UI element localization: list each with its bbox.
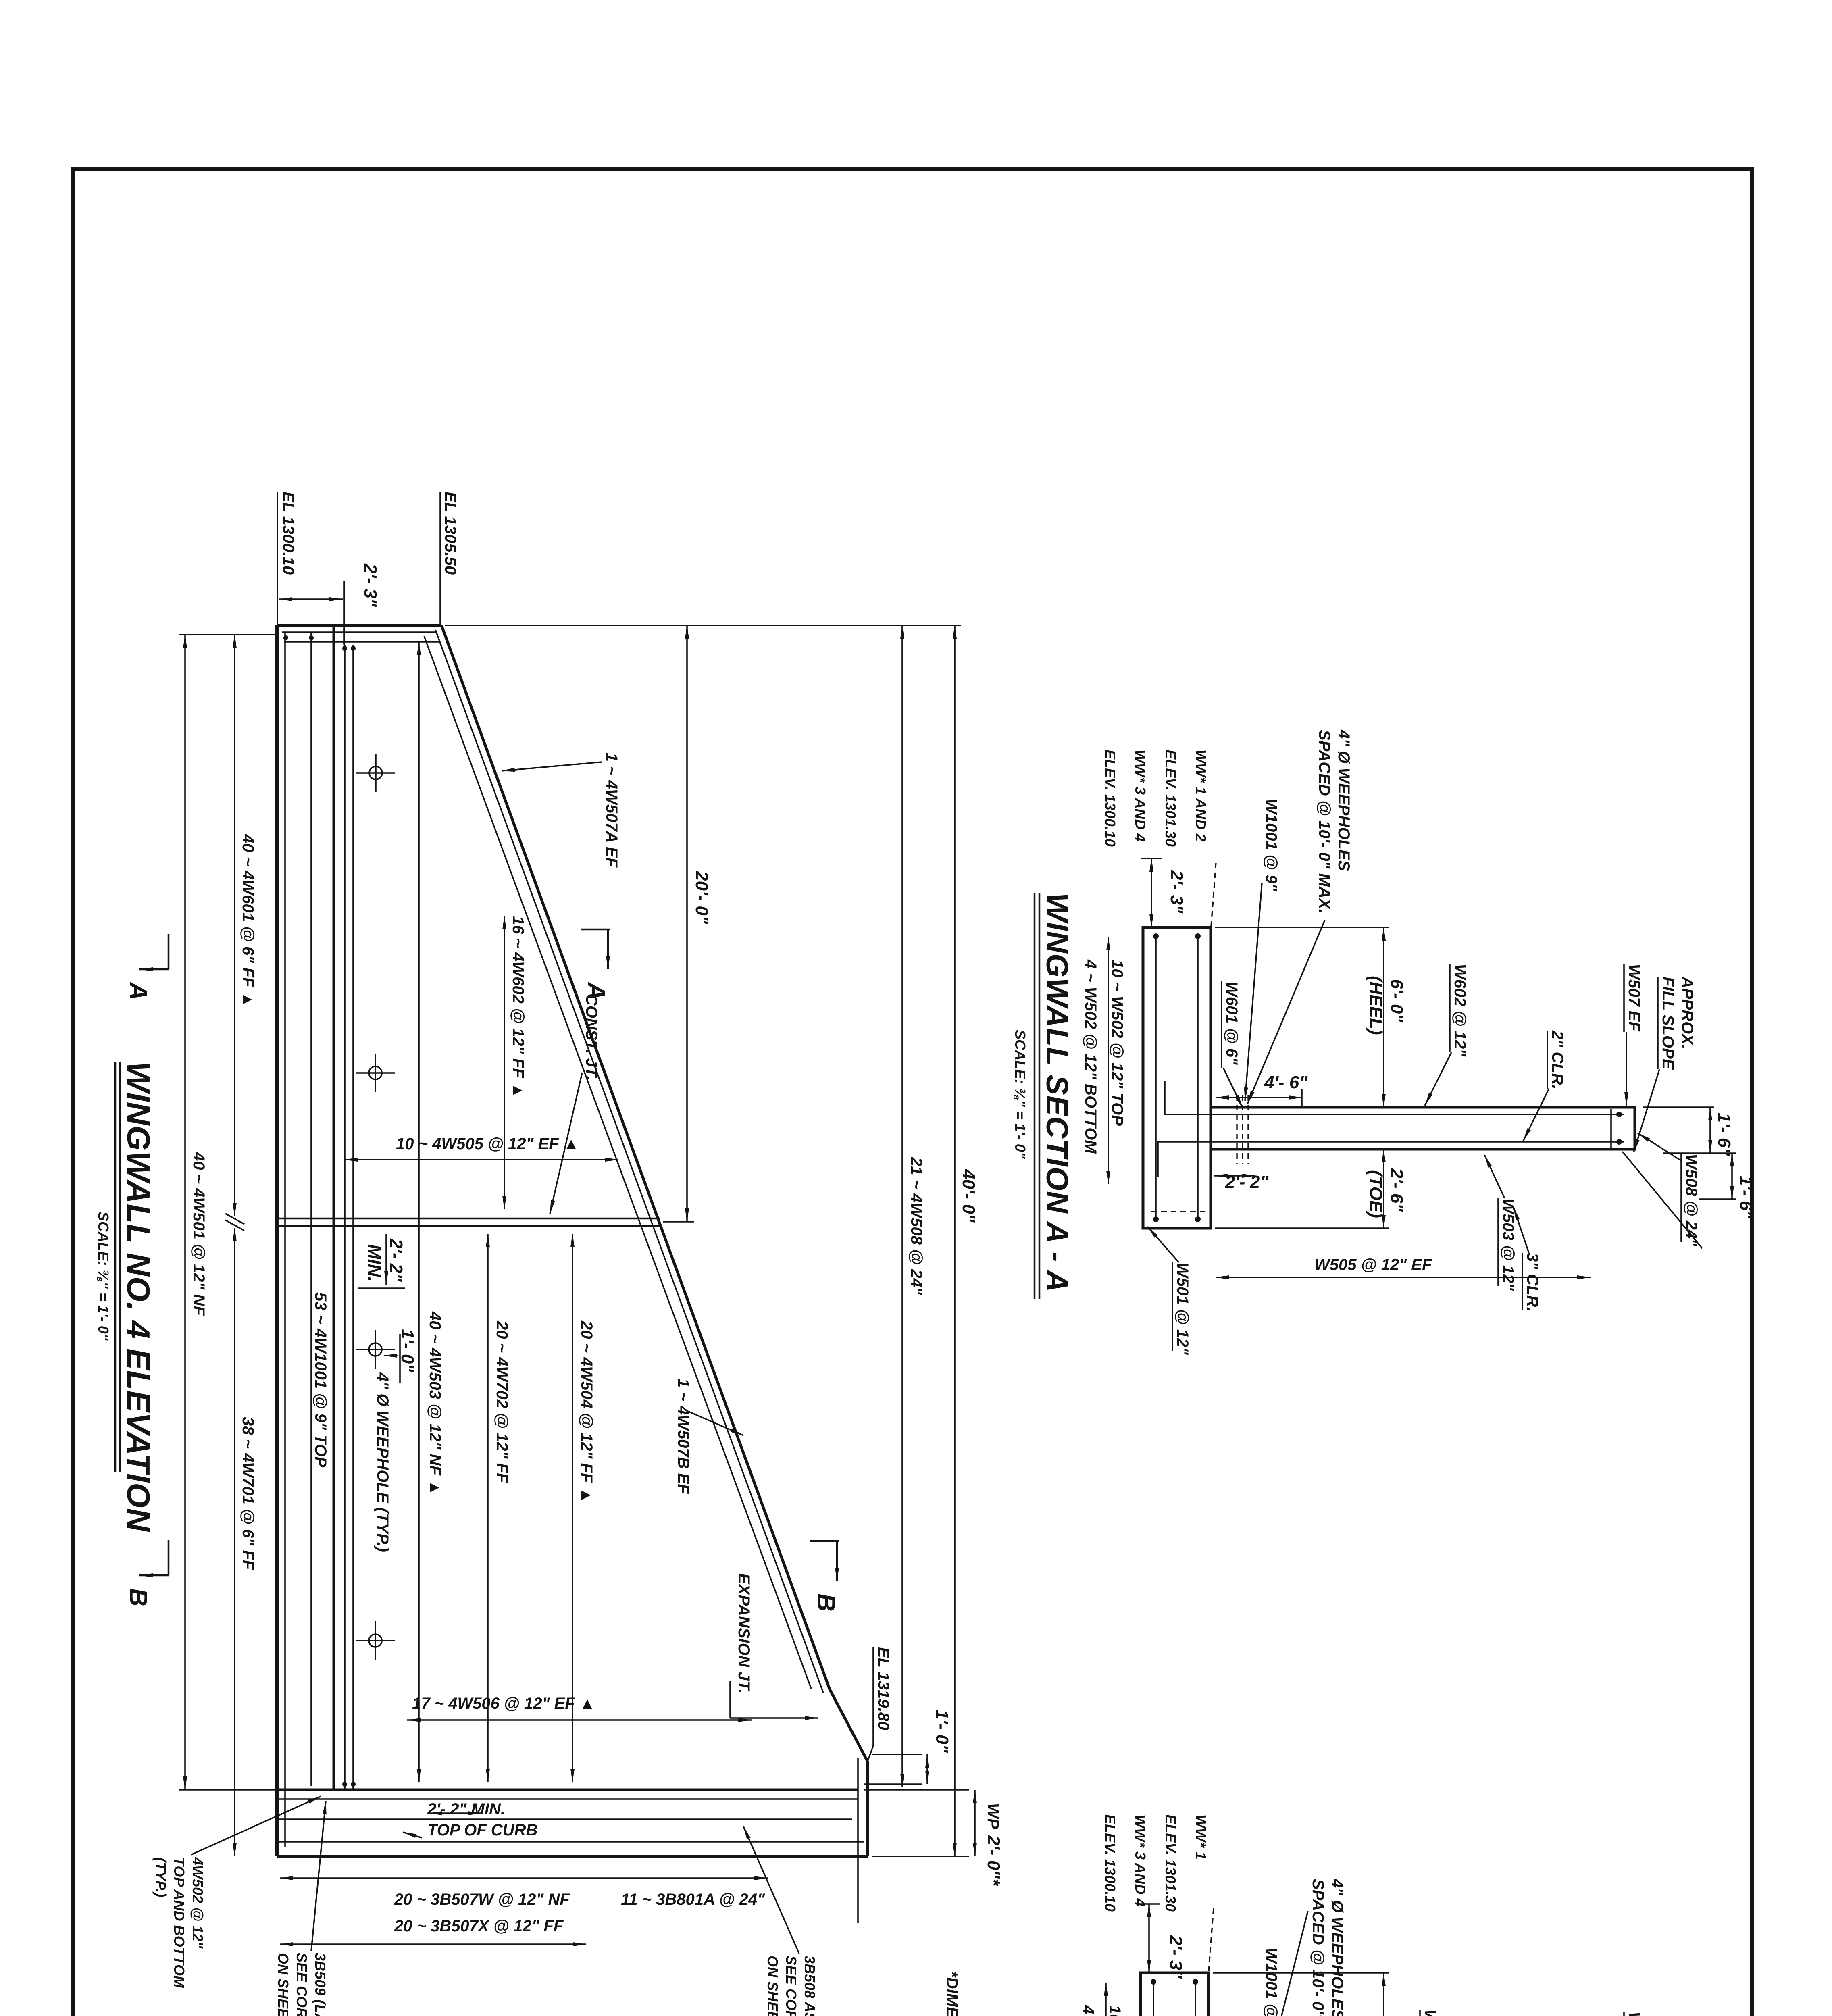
svg-text:W601 @ 6": W601 @ 6" xyxy=(1223,981,1241,1065)
svg-text:B: B xyxy=(124,1588,152,1607)
svg-text:SPACED @ 10'- 0" MAX.: SPACED @ 10'- 0" MAX. xyxy=(1309,1879,1327,2016)
svg-text:A: A xyxy=(124,981,152,1001)
svg-text:40 ~ 4W601 @ 6" FF ▲: 40 ~ 4W601 @ 6" FF ▲ xyxy=(239,834,257,1008)
svg-text:20 ~ 4W702 @ 12" FF: 20 ~ 4W702 @ 12" FF xyxy=(493,1320,511,1483)
svg-text:4" Ø WEEPHOLES: 4" Ø WEEPHOLES xyxy=(1335,729,1353,871)
svg-text:2'- 6": 2'- 6" xyxy=(1387,1168,1407,1212)
svg-text:APPROX.: APPROX. xyxy=(1678,976,1696,1049)
svg-text:3B509 (LAP TO 3B508): 3B509 (LAP TO 3B508) xyxy=(312,1953,329,2016)
svg-text:20 ~ 3B507X @ 12" FF: 20 ~ 3B507X @ 12" FF xyxy=(394,1917,564,1935)
svg-text:W1001 @ 9": W1001 @ 9" xyxy=(1262,1948,1280,2016)
svg-text:2'- 0"*: 2'- 0"* xyxy=(984,1835,1003,1886)
svg-text:ON SHEET BR 306: ON SHEET BR 306 xyxy=(275,1953,291,2016)
svg-text:3B508 AS SHOWN: 3B508 AS SHOWN xyxy=(801,1956,818,2016)
svg-text:2'- 3": 2'- 3" xyxy=(1167,870,1187,914)
svg-text:TOP OF CURB: TOP OF CURB xyxy=(427,1821,537,1839)
svg-text:(TYP.): (TYP.) xyxy=(152,1857,169,1897)
svg-text:2" CLR.: 2" CLR. xyxy=(1549,1030,1566,1089)
svg-text:38 ~ 4W701 @ 6" FF: 38 ~ 4W701 @ 6" FF xyxy=(239,1417,257,1570)
svg-text:3" CLR.: 3" CLR. xyxy=(1524,1253,1541,1312)
svg-text:TOP AND BOTTOM: TOP AND BOTTOM xyxy=(171,1857,187,1988)
svg-text:(HEEL): (HEEL) xyxy=(1366,976,1386,1035)
svg-text:WW* 3 AND 4: WW* 3 AND 4 xyxy=(1132,1814,1149,1907)
svg-text:MIN.: MIN. xyxy=(364,1244,384,1282)
svg-text:ELEV. 1300.10: ELEV. 1300.10 xyxy=(1102,750,1118,847)
svg-text:W702 @ 12": W702 @ 12" xyxy=(1421,2010,1439,2016)
svg-text:16 ~ 4W602 @ 12" FF ▲: 16 ~ 4W602 @ 12" FF ▲ xyxy=(509,916,527,1098)
svg-text:1'- 6": 1'- 6" xyxy=(1736,1176,1756,1219)
svg-text:WP: WP xyxy=(984,1803,1002,1829)
svg-text:1 ~ 4W507B EF: 1 ~ 4W507B EF xyxy=(675,1379,692,1494)
svg-text:A: A xyxy=(582,981,610,1001)
svg-text:40 ~ 4W501 @ 12" NF: 40 ~ 4W501 @ 12" NF xyxy=(190,1152,208,1316)
svg-text:ON SHEET BR 306: ON SHEET BR 306 xyxy=(764,1956,781,2016)
svg-text:SPACED @ 10'- 0" MAX.: SPACED @ 10'- 0" MAX. xyxy=(1316,730,1333,914)
svg-text:ELEV. 1301.30: ELEV. 1301.30 xyxy=(1162,1814,1179,1912)
svg-text:W505 @ 12" EF: W505 @ 12" EF xyxy=(1314,1256,1432,1274)
svg-text:2'- 2": 2'- 2" xyxy=(386,1238,406,1282)
svg-text:40 ~ 4W503 @ 12" NF ▲: 40 ~ 4W503 @ 12" NF ▲ xyxy=(426,1311,444,1496)
svg-text:EXPANSION JT.: EXPANSION JT. xyxy=(735,1573,753,1694)
svg-text:FILL SLOPE: FILL SLOPE xyxy=(1659,977,1677,1070)
svg-text:1 ~ 4W507A EF: 1 ~ 4W507A EF xyxy=(603,753,620,868)
svg-text:EL 1305.50: EL 1305.50 xyxy=(441,492,459,575)
svg-text:WW* 1: WW* 1 xyxy=(1193,1814,1209,1860)
svg-text:4" Ø WEEPHOLES: 4" Ø WEEPHOLES xyxy=(1328,1879,1346,2016)
svg-text:B: B xyxy=(812,1593,840,1612)
svg-text:WW* 1 AND 2: WW* 1 AND 2 xyxy=(1193,750,1209,842)
svg-text:10 ~ W502 @ 12" TOP: 10 ~ W502 @ 12" TOP xyxy=(1106,2005,1124,2016)
svg-text:W507 EF: W507 EF xyxy=(1625,964,1643,1032)
svg-text:17 ~ 4W506 @ 12" EF ▲: 17 ~ 4W506 @ 12" EF ▲ xyxy=(412,1695,595,1712)
svg-text:20 ~ 4W504 @ 12" FF ▲: 20 ~ 4W504 @ 12" FF ▲ xyxy=(578,1320,595,1503)
svg-text:W508 @ 24": W508 @ 24" xyxy=(1682,1154,1700,1247)
svg-text:21 ~ 4W508 @ 24": 21 ~ 4W508 @ 24" xyxy=(908,1157,925,1295)
svg-text:EL 1319.80: EL 1319.80 xyxy=(874,1647,892,1730)
svg-text:1'- 6": 1'- 6" xyxy=(1714,1113,1734,1156)
svg-text:20 ~ 3B507W @ 12" NF: 20 ~ 3B507W @ 12" NF xyxy=(394,1891,570,1908)
svg-text:4" Ø WEEPHOLE (TYP.): 4" Ø WEEPHOLE (TYP.) xyxy=(374,1372,391,1552)
svg-text:6'- 0": 6'- 0" xyxy=(1387,979,1407,1023)
svg-text:4W502 @ 12": 4W502 @ 12" xyxy=(189,1857,206,1949)
svg-text:SCALE: ⅜" = 1'- 0": SCALE: ⅜" = 1'- 0" xyxy=(1012,1030,1028,1159)
svg-text:SEE CORNER DETAIL: SEE CORNER DETAIL xyxy=(783,1956,799,2016)
svg-text:W1001 @ 9": W1001 @ 9" xyxy=(1262,799,1280,891)
svg-text:20'- 0": 20'- 0" xyxy=(692,871,712,925)
svg-text:4 ~ W502 @ 12" BOTTOM: 4 ~ W502 @ 12" BOTTOM xyxy=(1079,2005,1097,2016)
svg-text:SCALE: ⅜" = 1'- 0": SCALE: ⅜" = 1'- 0" xyxy=(95,1212,112,1341)
svg-text:EL 1300.10: EL 1300.10 xyxy=(279,492,297,575)
svg-text:W507 EF: W507 EF xyxy=(1625,2012,1643,2016)
svg-text:WINGWALL SECTION A - A: WINGWALL SECTION A - A xyxy=(1040,893,1074,1293)
svg-text:10 ~ W502 @ 12" TOP: 10 ~ W502 @ 12" TOP xyxy=(1108,960,1126,1126)
svg-text:WINGWALL NO. 4 ELEVATION: WINGWALL NO. 4 ELEVATION xyxy=(121,1062,156,1532)
svg-text:2'- 3": 2'- 3" xyxy=(1166,1935,1186,1979)
svg-text:2'- 2" MIN.: 2'- 2" MIN. xyxy=(427,1800,505,1818)
svg-text:WW* 3 AND 4: WW* 3 AND 4 xyxy=(1132,750,1149,842)
svg-text:11 ~ 3B801A @ 24": 11 ~ 3B801A @ 24" xyxy=(621,1891,765,1908)
svg-text:4 ~ W502 @ 12" BOTTOM: 4 ~ W502 @ 12" BOTTOM xyxy=(1082,959,1099,1154)
svg-text:40'- 0": 40'- 0" xyxy=(959,1169,978,1223)
svg-text:*DIMENSION ALONG FACE OF BOX: *DIMENSION ALONG FACE OF BOX xyxy=(943,1971,961,2016)
svg-text:10 ~ 4W505 @ 12" EF ▲: 10 ~ 4W505 @ 12" EF ▲ xyxy=(396,1135,579,1153)
svg-text:W501 @ 12": W501 @ 12" xyxy=(1174,1262,1191,1355)
svg-text:2'- 3": 2'- 3" xyxy=(360,563,380,607)
svg-text:1'- 0": 1'- 0" xyxy=(932,1710,952,1753)
svg-text:ELEV. 1300.10: ELEV. 1300.10 xyxy=(1102,1814,1118,1912)
svg-text:SEE CORNER DETAIL: SEE CORNER DETAIL xyxy=(294,1953,310,2016)
svg-text:W602 @ 12": W602 @ 12" xyxy=(1451,964,1469,1057)
svg-text:ELEV. 1301.30: ELEV. 1301.30 xyxy=(1162,750,1179,847)
svg-text:CONST. JT.: CONST. JT. xyxy=(583,994,600,1080)
svg-text:(TOE): (TOE) xyxy=(1366,1170,1386,1218)
svg-text:53 ~ 4W1001 @ 9" TOP: 53 ~ 4W1001 @ 9" TOP xyxy=(312,1292,329,1467)
